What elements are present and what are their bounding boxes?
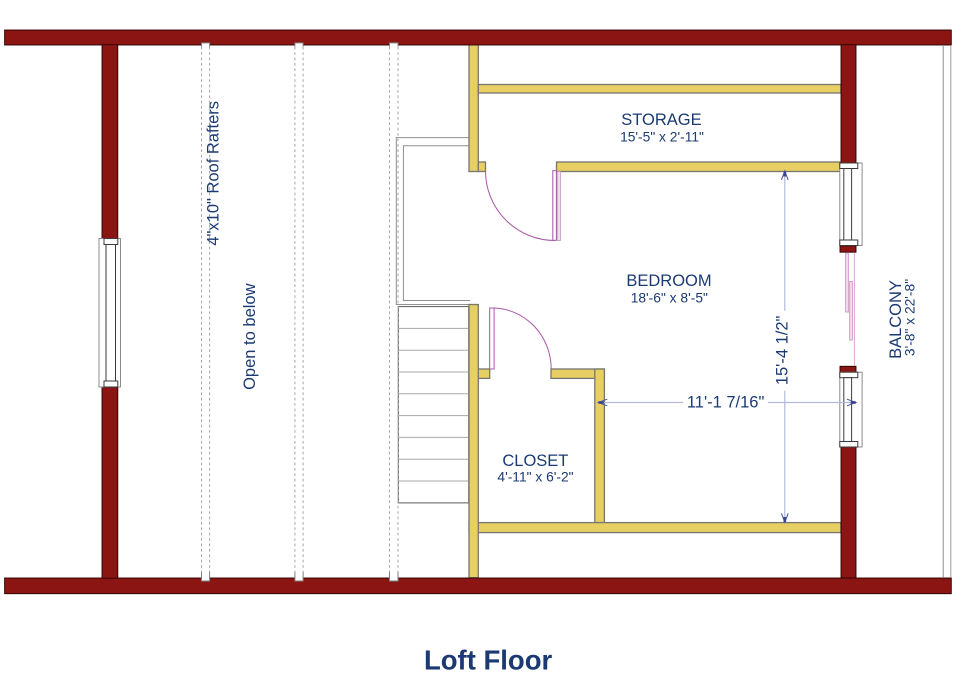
- svg-text:15'-5" x 2'-11": 15'-5" x 2'-11": [620, 129, 704, 144]
- svg-text:11'-1 7/16": 11'-1 7/16": [687, 393, 765, 411]
- svg-text:Loft Floor: Loft Floor: [424, 645, 553, 676]
- svg-text:15'-4 1/2": 15'-4 1/2": [774, 315, 792, 385]
- svg-text:Open to below: Open to below: [241, 283, 259, 389]
- svg-text:4"x10" Roof Rafters: 4"x10" Roof Rafters: [204, 101, 222, 246]
- svg-text:CLOSET: CLOSET: [502, 452, 568, 470]
- svg-text:3'-8" x 22'-8": 3'-8" x 22'-8": [903, 279, 918, 356]
- svg-text:18'-6" x 8'-5": 18'-6" x 8'-5": [631, 291, 708, 306]
- svg-text:STORAGE: STORAGE: [621, 111, 701, 129]
- svg-text:4'-11" x 6'-2": 4'-11" x 6'-2": [497, 470, 573, 485]
- svg-text:BEDROOM: BEDROOM: [626, 272, 711, 290]
